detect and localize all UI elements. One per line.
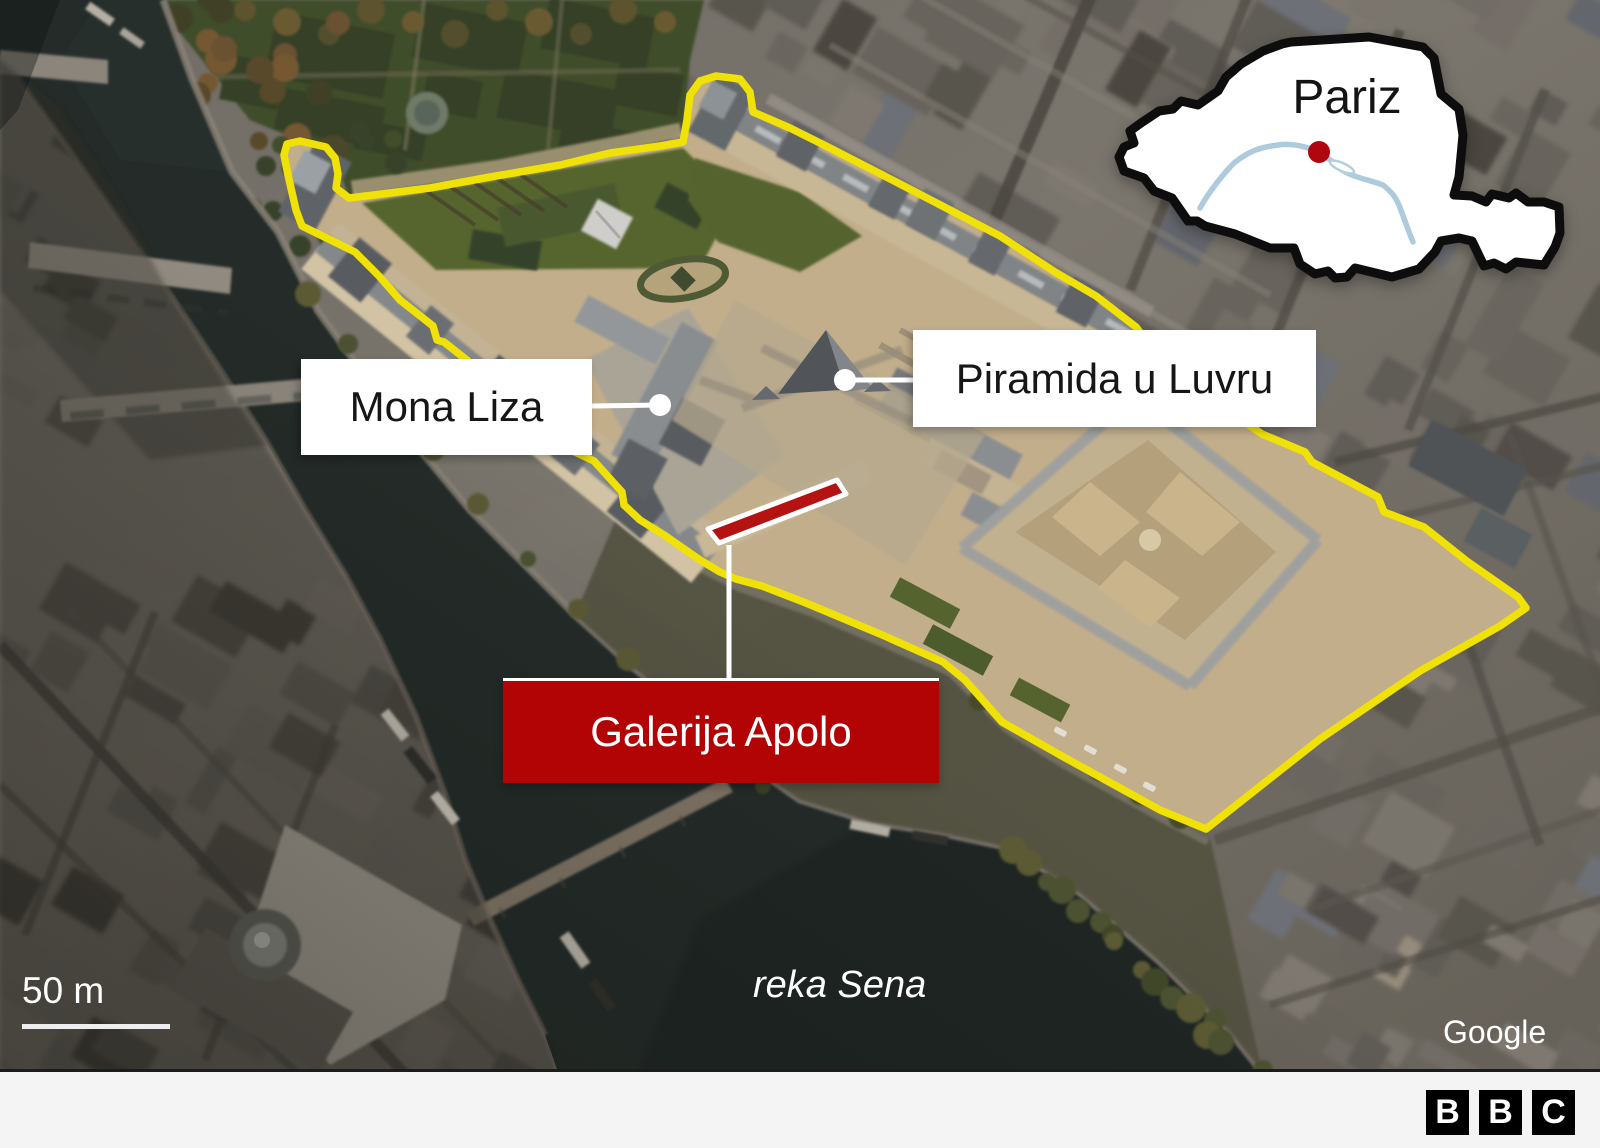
svg-text:Pariz: Pariz	[1292, 71, 1401, 124]
svg-text:50 m: 50 m	[22, 970, 104, 1011]
svg-text:reka Sena: reka Sena	[753, 964, 926, 1006]
svg-text:Google: Google	[1443, 1014, 1546, 1050]
